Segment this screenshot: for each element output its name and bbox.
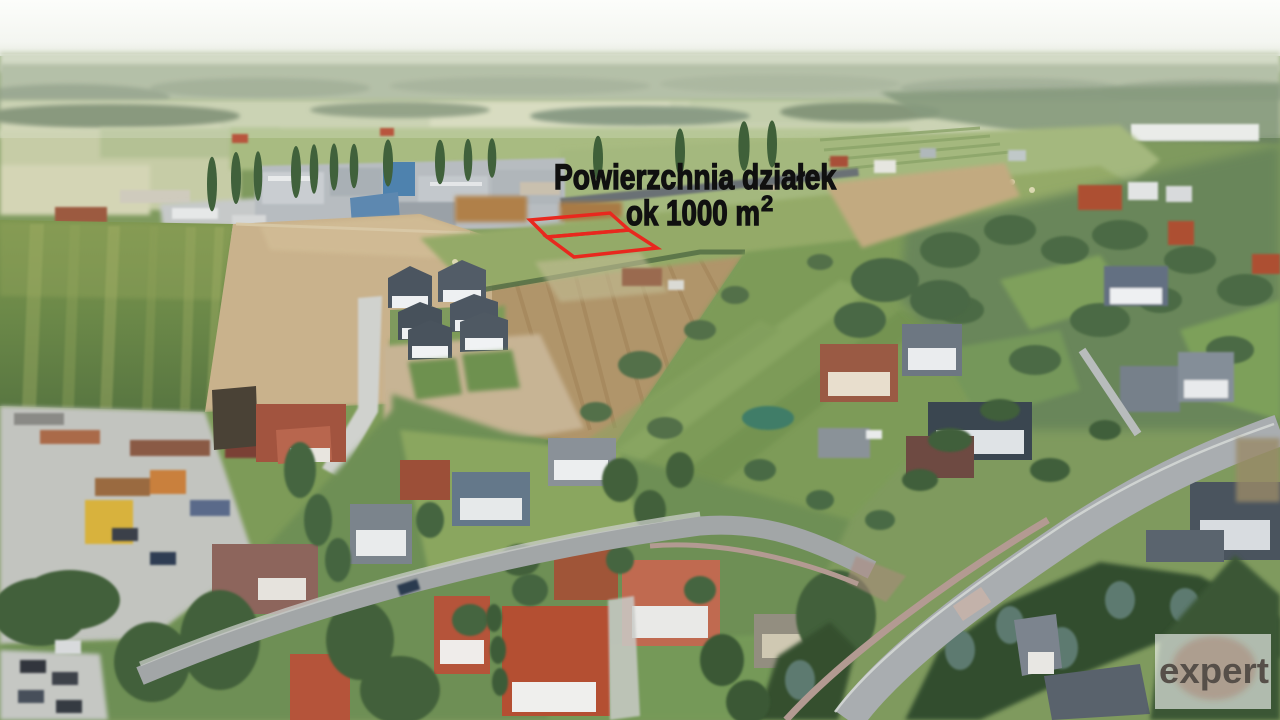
svg-text:ok 1000 m: ok 1000 m — [626, 194, 760, 233]
svg-text:expert: expert — [1159, 650, 1269, 691]
svg-text:Powierzchnia działek: Powierzchnia działek — [554, 158, 836, 197]
svg-text:2: 2 — [761, 191, 773, 216]
